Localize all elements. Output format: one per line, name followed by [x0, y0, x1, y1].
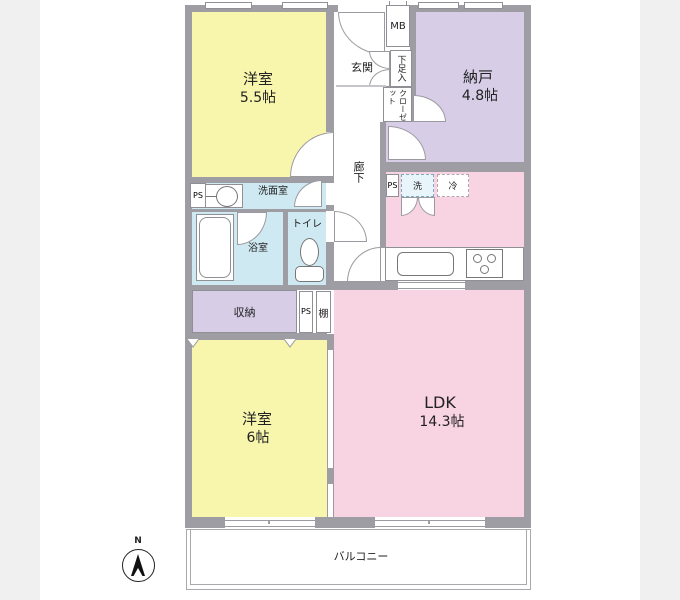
- shelf-box: 棚: [316, 291, 331, 333]
- ps-box-kitchen: PS: [386, 174, 399, 197]
- bedroom2-size: 6帖: [193, 430, 323, 446]
- north-label: N: [130, 536, 146, 548]
- wall-nando-bottom: [380, 162, 531, 172]
- balcony-label: バルコニー: [286, 551, 436, 565]
- wall-bottom-seg3: [485, 517, 531, 528]
- sliding-door-bed2-ldk-1: [327, 350, 334, 468]
- wall-kitchen-pass-right: [465, 281, 524, 290]
- wall-divider-top: [327, 334, 334, 350]
- kitchen-sink: [397, 252, 454, 276]
- ldk-name: LDK: [375, 394, 505, 413]
- toilet-label: トイレ: [288, 219, 326, 232]
- ps-box-lower: PS: [299, 291, 313, 333]
- entrance-step-line: [336, 85, 386, 87]
- entrance-gap: [338, 2, 386, 12]
- notch-bedroom2-left: [186, 339, 200, 348]
- kitchen-opening: [398, 282, 465, 289]
- shoe-box-label: 下足入: [395, 55, 408, 82]
- ps-label-kitchen: PS: [388, 181, 398, 191]
- bathroom-label: 浴室: [233, 243, 283, 256]
- storage-label: 収納: [234, 304, 256, 320]
- storage-closet: 収納: [192, 290, 297, 333]
- floorplan-image: バルコニー PS: [0, 0, 680, 600]
- ldk-size: 14.3帖: [377, 414, 507, 431]
- window-top-bed1-1: [205, 2, 252, 9]
- stove-burner-1: [473, 254, 482, 263]
- room-storage: [416, 12, 524, 162]
- window-top-bed1-2: [282, 2, 328, 9]
- washroom-label: 洗面室: [237, 186, 309, 199]
- washer-space: 洗: [401, 174, 434, 197]
- closet-box: クローゼット: [383, 87, 412, 122]
- bedroom1-name: 洋室: [193, 71, 323, 89]
- toilet-bowl: [300, 238, 319, 266]
- wall-storage-bottom: [185, 333, 327, 340]
- window-ldk-tick: [428, 520, 430, 524]
- ps-box-washroom: PS: [190, 183, 206, 208]
- shoe-box: 下足入: [390, 50, 412, 87]
- window-bedroom2: [225, 520, 315, 527]
- wall-corridor-left-1: [326, 8, 334, 132]
- closet-label: クローゼット: [387, 89, 409, 121]
- washer-label: 洗: [413, 179, 422, 192]
- wall-corridor-left-2: [326, 205, 334, 211]
- sink-bowl: [216, 186, 238, 207]
- window-bedroom2-tick: [268, 520, 270, 524]
- hallway-label: 廊下: [350, 152, 364, 192]
- sink-faucet-tick: [206, 196, 216, 197]
- wall-divider-mid: [327, 468, 334, 484]
- wall-left: [185, 5, 192, 528]
- wall-bottom-seg2: [315, 517, 375, 528]
- ps-label-washroom: PS: [193, 191, 203, 201]
- meter-box: MB: [386, 5, 410, 47]
- wall-kitchen-pass-left: [330, 281, 398, 290]
- notch-bedroom2-right: [283, 339, 297, 348]
- window-top-nando-2: [464, 2, 503, 9]
- bedroom1-size: 5.5帖: [193, 90, 323, 106]
- bathtub-inner: [199, 217, 231, 278]
- compass-needle-notch: [133, 568, 143, 577]
- wall-bottom-seg1: [185, 517, 225, 528]
- window-ldk: [375, 520, 485, 527]
- storage-room-name: 納戸: [413, 69, 543, 87]
- stove-burner-3: [480, 265, 489, 274]
- storage-room-size: 4.8帖: [415, 88, 545, 104]
- entrance-label: 玄関: [338, 62, 386, 76]
- ps-label-lower: PS: [301, 307, 311, 317]
- wall-corridor-left-3: [326, 242, 334, 290]
- meter-box-label: MB: [390, 21, 406, 32]
- shelf-label: 棚: [319, 305, 329, 320]
- fridge-label: 冷: [448, 179, 457, 192]
- toilet-base: [295, 266, 324, 282]
- stove-burner-2: [487, 254, 496, 263]
- sliding-door-bed2-ldk-2: [327, 484, 334, 517]
- fridge-space: 冷: [437, 174, 469, 197]
- window-top-nando-1: [418, 2, 459, 9]
- bedroom2-name: 洋室: [192, 411, 322, 429]
